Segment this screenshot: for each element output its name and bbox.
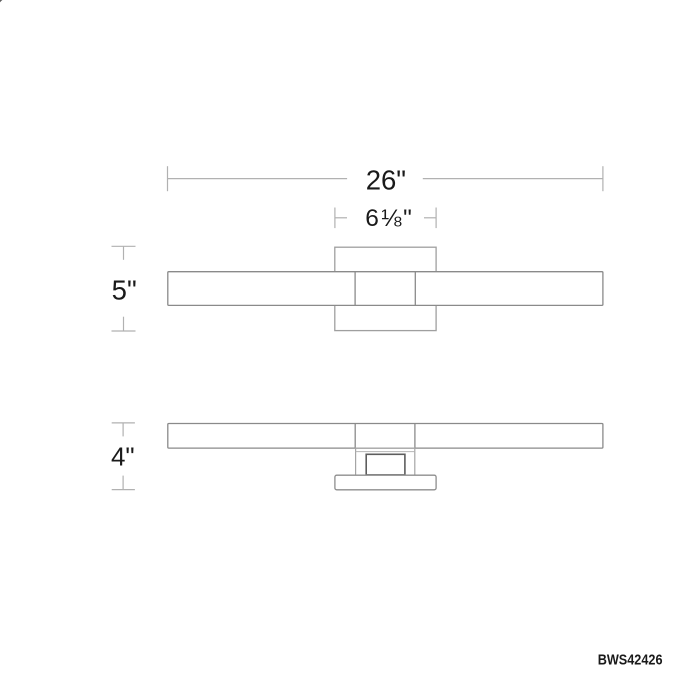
svg-text:6⅛": 6⅛" [365,205,411,232]
svg-text:4": 4" [111,442,135,472]
svg-text:5": 5" [112,274,137,305]
svg-text:26": 26" [366,164,406,195]
svg-text:BWS42426: BWS42426 [598,652,663,668]
